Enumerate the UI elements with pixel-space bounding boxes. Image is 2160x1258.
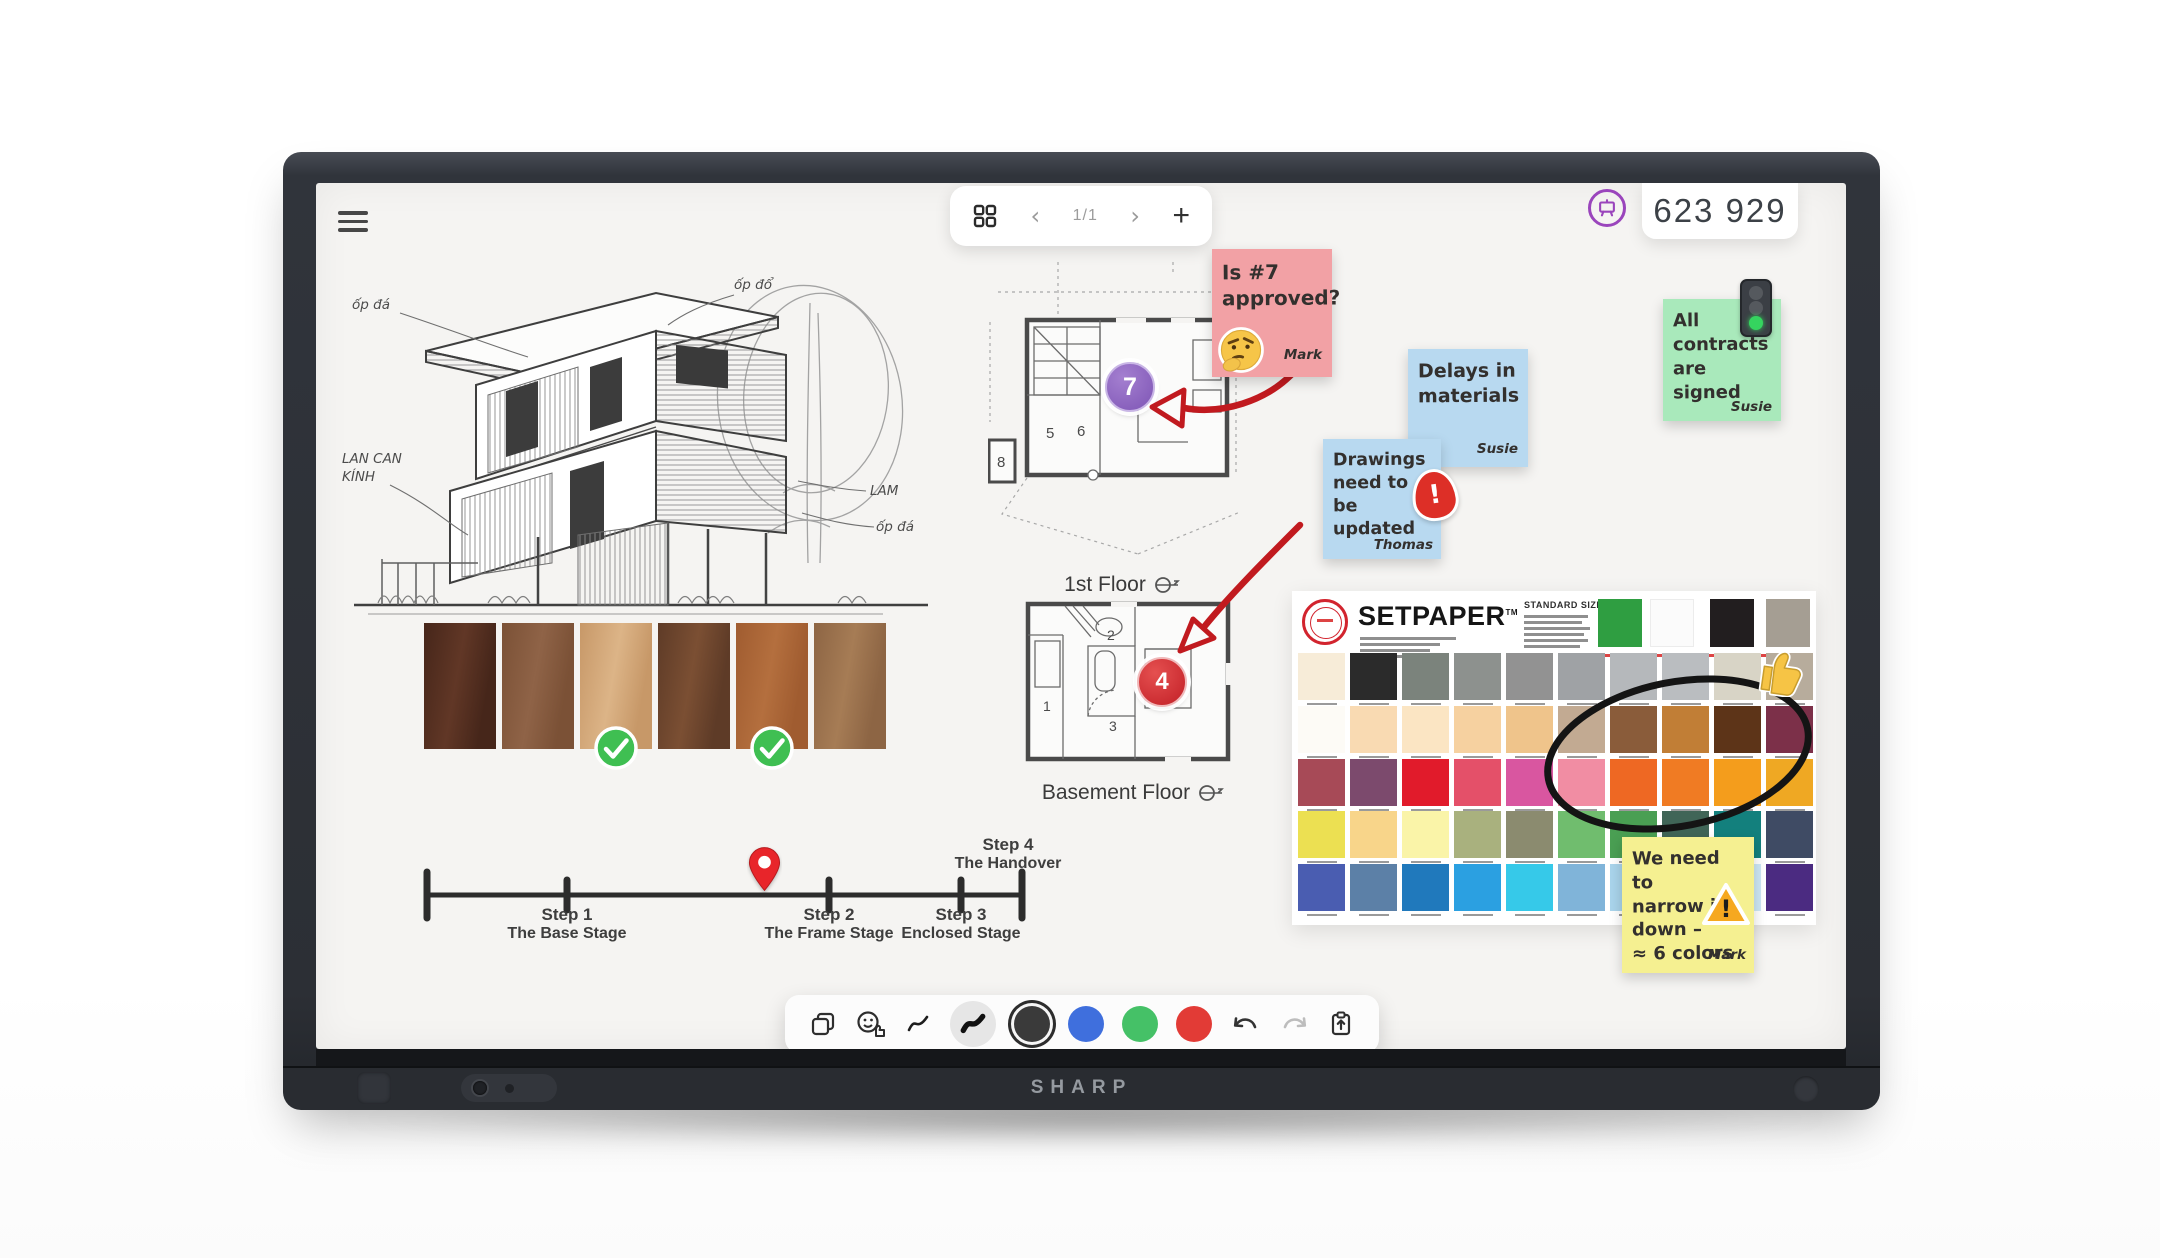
setpaper-logo — [1302, 599, 1348, 645]
approved-check-icon — [593, 725, 639, 771]
traffic-light-icon — [1740, 279, 1772, 337]
note-author: Susie — [1477, 441, 1518, 457]
note-author: Mark — [1708, 947, 1746, 963]
paper-swatch — [1558, 864, 1605, 916]
session-code-card: 623 929 — [1642, 183, 1798, 239]
drawing-toolbar — [785, 995, 1379, 1049]
undo-icon — [1231, 1011, 1261, 1037]
pen-thin-icon — [905, 1011, 931, 1037]
sticky-note-pink[interactable]: Is #7 approved? Mark — [1212, 249, 1332, 377]
paper-swatch — [1402, 811, 1449, 863]
color-green-button[interactable] — [1122, 1006, 1158, 1042]
page-indicator: 1/1 — [1073, 207, 1098, 225]
timeline-step-4: Step 4The Handover — [928, 835, 1088, 873]
paper-swatch — [1402, 706, 1449, 758]
previous-page-button[interactable]: ‹ — [1031, 204, 1041, 228]
color-black-button[interactable] — [1014, 1006, 1050, 1042]
paper-swatch — [1454, 864, 1501, 916]
paste-button[interactable] — [1327, 1010, 1355, 1038]
first-floor-label: 1st Floor — [1042, 573, 1202, 597]
timeline-step-1: Step 1The Base Stage — [487, 905, 647, 943]
session-code: 623 929 — [1653, 192, 1786, 230]
paper-swatch — [1298, 811, 1345, 863]
paper-swatch — [1454, 811, 1501, 863]
sharp-display-device: ‹ 1/1 › + 623 929 — [283, 152, 1880, 1108]
redo-icon — [1279, 1011, 1309, 1037]
paper-swatch — [1402, 864, 1449, 916]
room-number: 3 — [1109, 718, 1117, 734]
paper-swatch — [1350, 759, 1397, 811]
paper-swatch — [1350, 653, 1397, 705]
north-orientation-icon — [1154, 576, 1180, 594]
paper-swatch — [1350, 811, 1397, 863]
paper-swatch — [1766, 864, 1813, 916]
paper-swatch — [1402, 759, 1449, 811]
hamburger-icon — [338, 211, 368, 215]
paper-swatch — [1506, 864, 1553, 916]
plan-badge-7[interactable]: 7 — [1105, 362, 1155, 412]
location-pin-icon[interactable] — [747, 845, 782, 893]
paper-swatch — [1650, 599, 1694, 647]
bezel-gap — [316, 1049, 1846, 1066]
sketch-note: LAN CAN — [342, 451, 402, 467]
timeline-step-3: Step 3Enclosed Stage — [881, 905, 1041, 943]
paper-swatch — [1710, 599, 1754, 647]
whiteboard-share-icon — [1596, 197, 1618, 219]
sensor-button[interactable] — [1793, 1076, 1819, 1102]
note-author: Thomas — [1374, 537, 1433, 553]
whiteboard-screen: ‹ 1/1 › + 623 929 — [316, 183, 1846, 1049]
paper-swatch — [1454, 759, 1501, 811]
wood-samples — [424, 623, 886, 749]
paper-swatch — [1298, 864, 1345, 916]
sketch-note: ốp đá — [876, 518, 914, 535]
approved-check-icon — [749, 725, 795, 771]
duplicate-button[interactable] — [809, 1010, 837, 1038]
photo-background: ‹ 1/1 › + 623 929 — [0, 0, 2160, 1258]
room-number: 8 — [997, 454, 1005, 471]
warning-triangle-icon: ! — [1700, 881, 1752, 929]
wood-swatch[interactable] — [736, 623, 808, 749]
basement-floor-label: Basement Floor — [1028, 781, 1238, 805]
pen-thick-button[interactable] — [950, 1001, 996, 1047]
room-number: 2 — [1107, 627, 1115, 643]
wood-swatch[interactable] — [658, 623, 730, 749]
sketch-note: KÍNH — [342, 468, 375, 485]
sketch-note: LAM — [870, 483, 899, 499]
paper-swatch — [1298, 653, 1345, 705]
redo-button[interactable] — [1279, 1011, 1309, 1037]
basement-floor-plan[interactable]: 1 2 3 — [1025, 601, 1231, 763]
paper-swatch — [1598, 599, 1642, 647]
wood-swatch[interactable] — [580, 623, 652, 749]
thinking-emoji — [1216, 325, 1266, 375]
next-page-button[interactable]: › — [1130, 204, 1140, 228]
page-navigation-card: ‹ 1/1 › + — [950, 186, 1212, 246]
north-orientation-icon — [1198, 784, 1224, 802]
color-red-button[interactable] — [1176, 1006, 1212, 1042]
bottom-bezel: SHARP — [283, 1066, 1880, 1110]
room-number: 1 — [1043, 698, 1051, 714]
first-floor-plan[interactable]: 5 6 8 — [988, 262, 1240, 572]
wood-swatch[interactable] — [502, 623, 574, 749]
clipboard-icon — [1327, 1010, 1355, 1038]
brand-logo: SHARP — [283, 1077, 1880, 1099]
paper-swatch — [1350, 706, 1397, 758]
sticker-button[interactable] — [855, 1009, 887, 1039]
paper-swatch — [1402, 653, 1449, 705]
wood-swatch[interactable] — [814, 623, 886, 749]
color-blue-button[interactable] — [1068, 1006, 1104, 1042]
sizes-heading: STANDARD SIZES — [1524, 600, 1609, 610]
pen-thick-icon — [959, 1010, 987, 1038]
svg-text:!: ! — [1721, 895, 1732, 923]
wood-swatch[interactable] — [424, 623, 496, 749]
menu-button[interactable] — [338, 211, 368, 233]
plan-badge-4[interactable]: 4 — [1137, 657, 1187, 707]
paper-swatch — [1298, 759, 1345, 811]
paper-swatch — [1454, 653, 1501, 705]
grid-icon — [972, 203, 998, 229]
page-overview-button[interactable] — [972, 203, 998, 229]
undo-button[interactable] — [1231, 1011, 1261, 1037]
paper-swatch — [1350, 864, 1397, 916]
paper-swatch — [1298, 706, 1345, 758]
paper-swatch — [1454, 706, 1501, 758]
share-session-button[interactable] — [1588, 189, 1626, 227]
pen-thin-button[interactable] — [905, 1011, 931, 1037]
architecture-sketch[interactable]: ốp đá ốp đổ LAN CAN KÍNH LAM ốp đá — [338, 233, 950, 641]
fine-print-placeholder — [1360, 637, 1456, 640]
note-author: Mark — [1284, 347, 1322, 363]
sketch-note: ốp đá — [352, 296, 390, 313]
room-number: 5 — [1046, 425, 1054, 442]
add-page-button[interactable]: + — [1172, 201, 1190, 231]
sticker-smiley-icon — [855, 1009, 887, 1039]
paper-swatch — [1766, 599, 1810, 647]
duplicate-icon — [809, 1010, 837, 1038]
thumbs-up-sticker — [1750, 643, 1804, 697]
note-author: Susie — [1731, 399, 1772, 415]
sketch-note: ốp đổ — [734, 276, 775, 293]
setpaper-brand: SETPAPERTM — [1358, 601, 1518, 632]
room-number: 6 — [1077, 423, 1085, 440]
